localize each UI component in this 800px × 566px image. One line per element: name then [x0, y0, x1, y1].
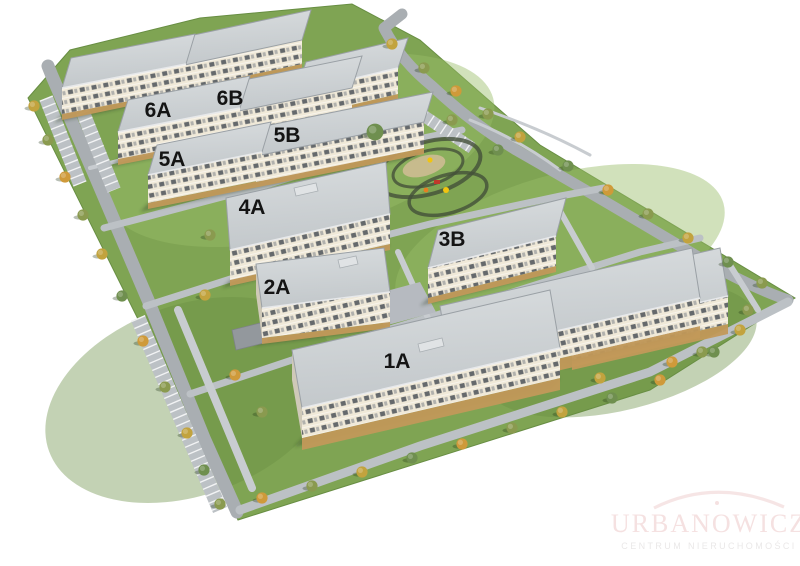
building-label-5a: 5A	[159, 148, 186, 171]
building-label-1a: 1A	[384, 350, 411, 373]
logo-tagline: CENTRUM NIERUCHOMOŚCI	[621, 540, 796, 551]
logo-arc-icon	[654, 492, 784, 508]
watermark-logo: URBANOWICZ CENTRUM NIERUCHOMOŚCI	[611, 492, 800, 551]
rendering-canvas: 6C 6A 6B 5A 5B	[0, 0, 800, 566]
building-label-5b: 5B	[274, 124, 301, 147]
logo-brand: URBANOWICZ	[611, 509, 800, 538]
building-label-4a: 4A	[239, 196, 266, 219]
building-label-6a: 6A	[145, 99, 172, 122]
building-label-6b: 6B	[217, 87, 244, 110]
site-plan-rendering: 6C 6A 6B 5A 5B	[0, 0, 800, 566]
building-label-2a: 2A	[264, 276, 291, 299]
building-label-3b: 3B	[439, 228, 466, 251]
